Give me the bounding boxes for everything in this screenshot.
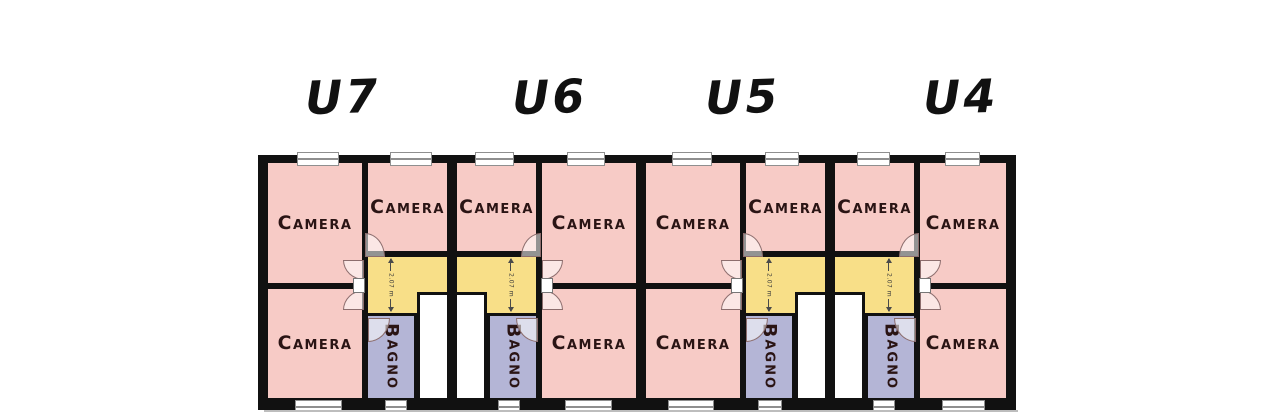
unit-title-u5: U5: [704, 69, 781, 126]
dimension-label: 2.07 m: [766, 271, 773, 299]
u6-camera-top-left: Camera: [457, 163, 536, 251]
unit-title-u6: U6: [511, 69, 588, 126]
u6-corridor: [457, 257, 536, 292]
u5-corridor: [746, 257, 825, 292]
window: [945, 152, 980, 166]
room-label: Camera: [459, 197, 534, 218]
room-label: Camera: [656, 333, 731, 354]
u7-dimension: 2.07 m: [385, 259, 397, 311]
room-label: Camera: [278, 213, 353, 234]
dimension-label: 2.07 m: [886, 271, 893, 299]
room-label: Camera: [837, 197, 912, 218]
room-label: Camera: [926, 213, 1001, 234]
door-jamb: [353, 278, 365, 293]
dimension-label: 2.07 m: [388, 271, 395, 299]
window: [765, 152, 799, 166]
window: [475, 152, 514, 166]
floor-plan-page: U7 U6 U5 U4 Camera Camera Camera Bagno 2…: [0, 0, 1280, 412]
u4-camera-top-left: Camera: [835, 163, 914, 251]
door-jamb: [541, 278, 553, 293]
room-label: Camera: [278, 333, 353, 354]
room-label: Camera: [552, 213, 627, 234]
door-jamb: [731, 278, 743, 293]
window: [857, 152, 890, 166]
u5-dimension: 2.07 m: [763, 259, 775, 311]
room-label: Camera: [926, 333, 1001, 354]
room-label: Camera: [748, 197, 823, 218]
u6-stairwell: [457, 295, 484, 398]
u6-dimension: 2.07 m: [505, 259, 517, 311]
window: [297, 152, 339, 166]
room-label: Camera: [552, 333, 627, 354]
u4-stairwell: [835, 295, 862, 398]
floor-plan: Camera Camera Camera Bagno 2.07 m Camera: [258, 155, 1016, 410]
window: [390, 152, 432, 166]
u4-corridor: [835, 257, 914, 292]
u4-dimension: 2.07 m: [883, 259, 895, 311]
dimension-label: 2.07 m: [508, 271, 515, 299]
u5-stairwell: [798, 295, 825, 398]
room-label: Camera: [370, 197, 445, 218]
unit-title-u4: U4: [922, 69, 999, 126]
room-label: Camera: [656, 213, 731, 234]
door-jamb: [919, 278, 931, 293]
u5-camera-top-right: Camera: [746, 163, 825, 251]
u7-stairwell: [420, 295, 447, 398]
u7-corridor: [368, 257, 447, 292]
u7-camera-top-right: Camera: [368, 163, 447, 251]
unit-title-u7: U7: [304, 69, 381, 126]
window: [672, 152, 712, 166]
window: [567, 152, 605, 166]
